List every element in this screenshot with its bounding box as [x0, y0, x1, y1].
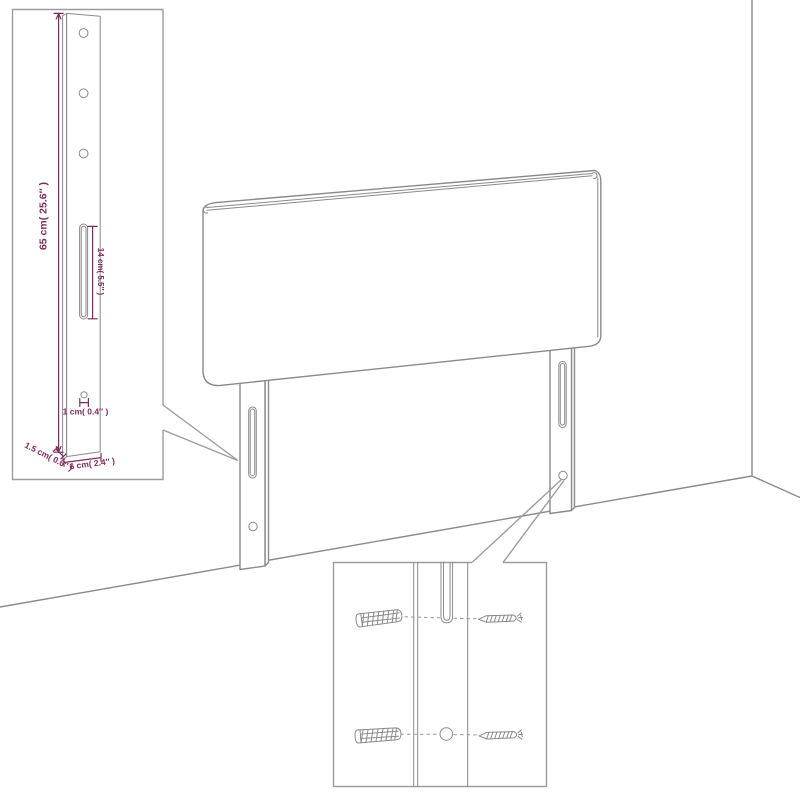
leg-detail-callout-lines — [163, 405, 238, 461]
left-leg-front-face — [240, 375, 265, 570]
leg-height-label: 65 cm( 25.6″ ) — [38, 182, 50, 250]
leg-detail-inset: 65 cm( 25.6″ ) 14 cm( 5.5″ ) 1 cm( 0.4″ … — [13, 10, 164, 480]
mounting-detail-inset — [334, 563, 547, 787]
diagram-canvas: 65 cm( 25.6″ ) 14 cm( 5.5″ ) 1 cm( 0.4″ … — [0, 0, 800, 800]
slot-length-label: 14 cm( 5.5″ ) — [96, 248, 105, 296]
mounting-detail-inset-background — [334, 563, 547, 787]
headboard-dimension-diagram: 65 cm( 25.6″ ) 14 cm( 5.5″ ) 1 cm( 0.4″ … — [0, 0, 800, 800]
headboard-left-leg — [240, 374, 269, 570]
headboard-panel — [203, 171, 601, 386]
hole-diameter-label: 1 cm( 0.4″ ) — [63, 407, 109, 417]
